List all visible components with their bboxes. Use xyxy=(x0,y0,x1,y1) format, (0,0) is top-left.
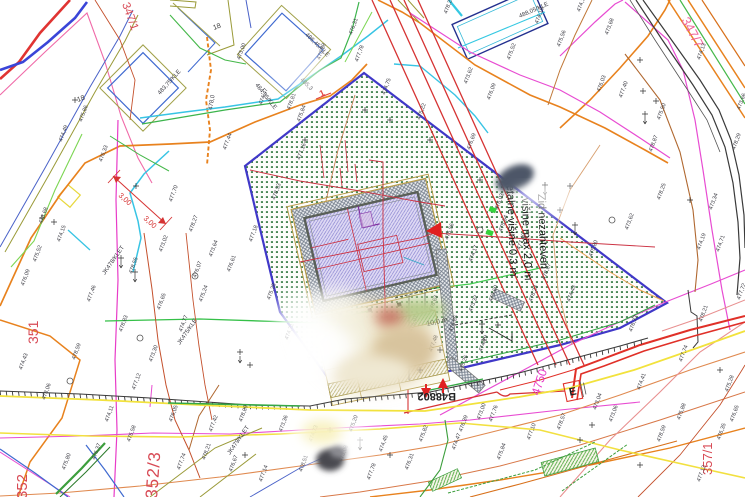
svg-text:B48802: B48802 xyxy=(417,390,456,402)
svg-text:352: 352 xyxy=(14,474,31,497)
svg-text:352/3: 352/3 xyxy=(142,451,164,497)
svg-text:351: 351 xyxy=(25,320,41,344)
